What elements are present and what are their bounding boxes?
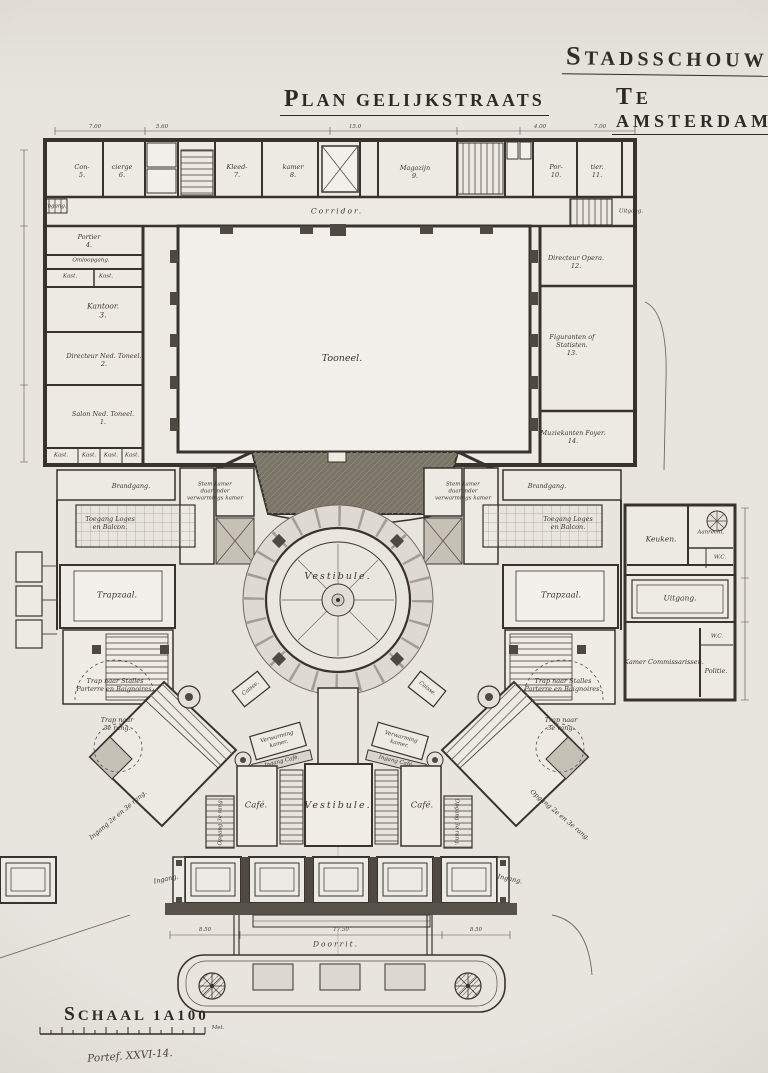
backstage-block <box>45 140 635 465</box>
drawing-sheet: Stadsschouwburg te Amsterdam Plan Gelijk… <box>0 0 768 1073</box>
floorplan-drawing <box>0 0 768 1073</box>
bottom-vestibule <box>305 764 372 846</box>
rotunda-lobby-corridor <box>318 688 358 766</box>
terrace <box>178 955 505 1012</box>
scale-bar <box>40 1027 205 1034</box>
side-stair-block <box>57 470 195 704</box>
annex-block <box>625 505 735 700</box>
edge-booths <box>16 552 57 648</box>
facade <box>0 857 517 965</box>
rotunda <box>243 505 433 695</box>
